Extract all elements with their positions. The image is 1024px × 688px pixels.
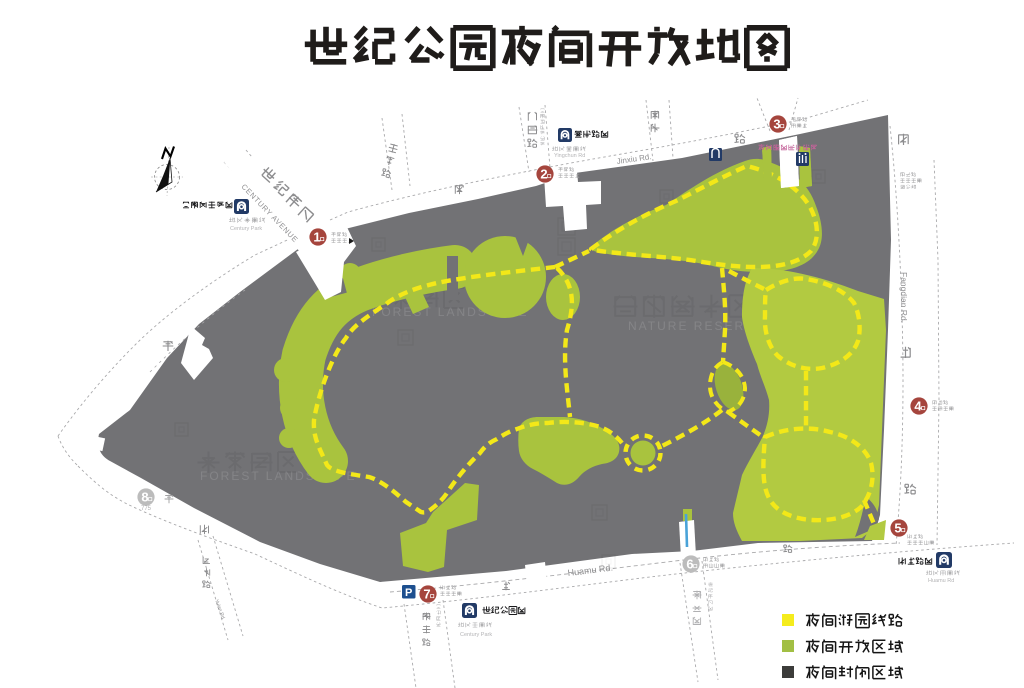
svg-text:1: 1 [313, 229, 320, 244]
svg-text:775: 775 [141, 506, 152, 512]
svg-text:Century Park: Century Park [460, 632, 492, 638]
svg-text:P: P [405, 587, 412, 599]
svg-text:Century Park: Century Park [230, 226, 262, 232]
svg-text:Fangdian Rd.: Fangdian Rd. [899, 272, 909, 323]
svg-text:6: 6 [686, 556, 693, 571]
svg-text:2: 2 [540, 166, 547, 181]
svg-text:3: 3 [773, 116, 780, 131]
svg-text:Yingchun Rd: Yingchun Rd [554, 153, 585, 159]
svg-text:8: 8 [141, 489, 148, 504]
svg-text:4: 4 [914, 398, 922, 413]
svg-text:5: 5 [894, 520, 901, 535]
svg-text:7: 7 [423, 586, 430, 601]
svg-text:Huamu Rd: Huamu Rd [928, 578, 954, 584]
